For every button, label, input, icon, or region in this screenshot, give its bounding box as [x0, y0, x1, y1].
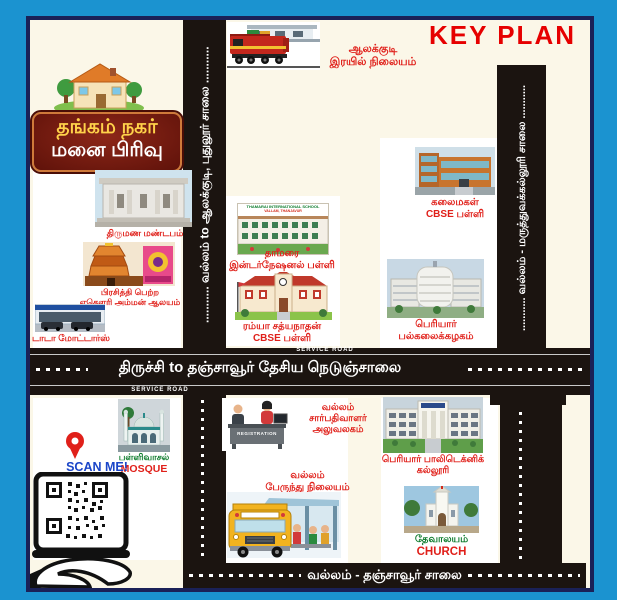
road-left-centerline — [201, 400, 204, 560]
registrar-office-image: REGISTRATION — [222, 398, 292, 451]
kalaimagal-school-label: கலைமகள் CBSE பள்ளி — [402, 197, 508, 221]
ramya-school-image — [235, 272, 332, 320]
college-building-icon — [383, 397, 483, 453]
wedding-hall-image — [95, 170, 192, 227]
thamarai-line1: தாமரை — [222, 248, 342, 260]
logo-line2: மனை பிரிவு — [34, 139, 180, 162]
registrar-line2: சார்பதிவாளர் — [288, 413, 388, 424]
ramya-school-label: ரம்யா சத்யநாதன் CBSE பள்ளி — [222, 321, 342, 345]
mosque-icon — [118, 399, 170, 452]
polytechnic-line2: கல்லூரி — [371, 465, 495, 476]
tata-line1: டாடா மோட்டார்ஸ் — [30, 333, 112, 344]
tata-motors-image — [35, 304, 105, 332]
temple-icon — [83, 242, 175, 286]
bottom-road-dots-right — [468, 574, 580, 577]
temple-line1: பிரசித்தி பெற்ற — [65, 287, 195, 297]
church-icon — [404, 486, 479, 533]
house-icon — [52, 56, 147, 116]
car-showroom-icon — [35, 304, 105, 332]
highway-divider-bottom — [30, 385, 590, 386]
qr-code-icon — [30, 472, 138, 588]
logo-line1: தங்கம் நகர் — [34, 116, 180, 139]
kalaimagal-school-icon — [415, 147, 495, 195]
road-national-highway: திருச்சி to தஞ்சாவூர் தேசிய நெடுஞ்சாலை S… — [30, 348, 590, 395]
thamarai-banner-line2: VALLAM, THANJAVUR — [238, 209, 328, 213]
ramya-school-icon — [235, 272, 332, 320]
registrar-line3: அலுவலகம் — [288, 424, 388, 435]
university-line2: பல்கலைக்கழகம் — [377, 331, 495, 343]
polytechnic-label: பெரியார் பாலிடெக்னிக் கல்லூரி — [371, 454, 495, 476]
wedding-hall-icon — [95, 170, 192, 227]
railway-station-image — [227, 22, 320, 70]
church-line1: தேவாலயம் — [394, 534, 489, 546]
bus-station-image — [227, 492, 341, 558]
wedding-hall-label: திருமண மண்டபம் — [85, 228, 205, 239]
bus-station-label: வல்லம் பேருந்து நிலையம் — [225, 470, 390, 494]
temple-image — [83, 242, 175, 286]
kalaimagal-school-image — [415, 147, 495, 195]
location-pin-icon — [64, 430, 86, 460]
wedding-hall-line1: திருமண மண்டபம் — [85, 228, 205, 239]
road-vallam-thanjavur: வல்லம் - தஞ்சாவூர் சாலை — [183, 563, 586, 588]
highway-divider-top — [30, 354, 590, 355]
registration-desk-sign: REGISTRATION — [231, 431, 283, 436]
ramya-line1: ரம்யா சத்யநாதன் — [222, 321, 342, 333]
thamarai-line2: இன்டர்நேஷனல் பள்ளி — [222, 260, 342, 272]
logo-house-image — [52, 56, 147, 116]
kalaimagal-line1: கலைமகள் — [402, 197, 508, 209]
railway-station-label: ஆலக்குடி இரயில் நிலையம் — [318, 43, 428, 69]
highway-label: திருச்சி to தஞ்சாவூர் தேசிய நெடுஞ்சாலை — [30, 359, 490, 378]
page-title: KEY PLAN — [420, 20, 585, 51]
kalaimagal-line2: CBSE பள்ளி — [402, 209, 508, 221]
key-plan-poster: ........... வல்லம் to ஆலக்குடி, புதுலூர்… — [0, 0, 617, 600]
polytechnic-image — [383, 397, 483, 453]
map-area: ........... வல்லம் to ஆலக்குடி, புதுலூர்… — [26, 16, 594, 592]
church-image — [404, 486, 479, 533]
road-connector-centerline — [519, 412, 522, 564]
registration-desk-icon — [222, 398, 292, 451]
mosque-image — [118, 399, 170, 452]
railway-line2: இரயில் நிலையம் — [318, 56, 428, 69]
qr-laptop-image — [30, 472, 138, 588]
project-logo: தங்கம் நகர் மனை பிரிவு — [32, 112, 182, 172]
service-road-label-top: SERVICE ROAD — [290, 347, 360, 353]
church-label: தேவாலயம் CHURCH — [394, 534, 489, 559]
road-connector — [500, 395, 562, 588]
thamarai-banner: THAMARAI INTERNATIONAL SCHOOL VALLAM, TH… — [238, 204, 328, 216]
registrar-line1: வல்லம் — [288, 402, 388, 413]
church-line2: CHURCH — [394, 546, 489, 560]
bottom-road-dots-left — [189, 574, 301, 577]
bus-icon — [227, 492, 341, 558]
train-icon — [227, 22, 320, 70]
ramya-line2: CBSE பள்ளி — [222, 333, 342, 345]
registrar-office-label: வல்லம் சார்பதிவாளர் அலுவலகம் — [288, 402, 388, 436]
tata-motors-label: டாடா மோட்டார்ஸ் — [30, 333, 112, 344]
bus-line1: வல்லம் — [225, 470, 390, 482]
university-line1: பெரியார் — [377, 319, 495, 331]
periyar-university-label: பெரியார் பல்கலைக்கழகம் — [377, 319, 495, 343]
university-icon — [387, 259, 484, 318]
periyar-university-image — [387, 259, 484, 318]
service-road-label-bottom: SERVICE ROAD — [125, 387, 195, 393]
bottom-road-label: வல்லம் - தஞ்சாவூர் சாலை — [307, 567, 462, 584]
railway-line1: ஆலக்குடி — [318, 43, 428, 56]
polytechnic-line1: பெரியார் பாலிடெக்னிக் — [371, 454, 495, 465]
thamarai-school-label: தாமரை இன்டர்நேஷனல் பள்ளி — [222, 248, 342, 272]
